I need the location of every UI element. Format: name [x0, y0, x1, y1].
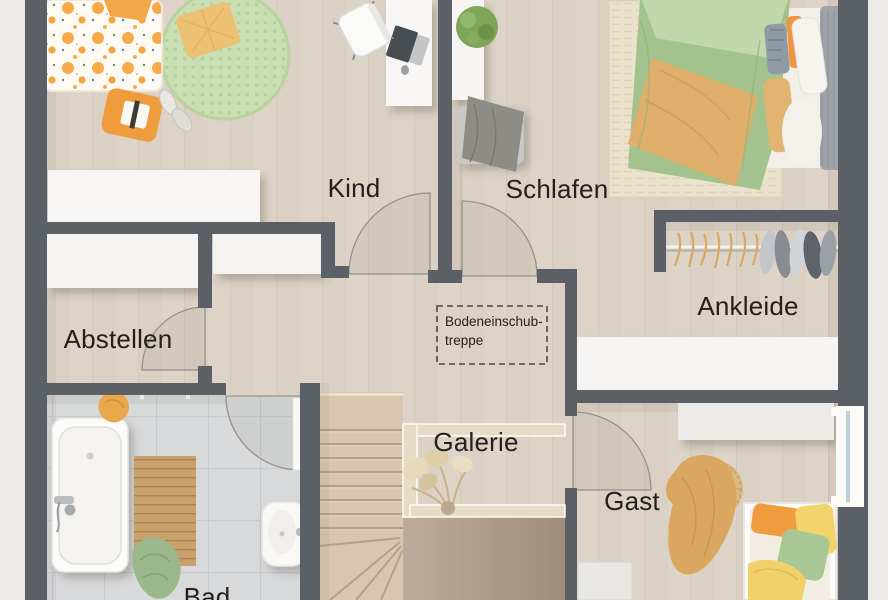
gast-wardrobe: [678, 403, 834, 440]
floorplan-image: Bodeneinschub- treppe Kind Schlafen Abst…: [0, 0, 888, 600]
wall-outer-right: [838, 0, 868, 600]
wall-schlafen-hall: [537, 269, 577, 283]
attic-hatch-label-line2: treppe: [445, 333, 483, 348]
potted-plant: [456, 6, 498, 48]
wall-ankleide-gast: [565, 390, 840, 403]
window-handle-bottom: [831, 496, 837, 505]
room-label-galerie: Galerie: [433, 427, 518, 457]
wall-schlafen-ankleide: [654, 210, 844, 222]
wall-kind-hall: [25, 222, 335, 234]
wall-spine-cap: [428, 270, 462, 283]
wall-ankleide-stub: [654, 210, 666, 272]
room-label-abstellen: Abstellen: [64, 324, 173, 354]
mouse: [401, 65, 409, 75]
floorplan-svg: Bodeneinschub- treppe Kind Schlafen Abst…: [0, 0, 888, 600]
wall-bad-top: [25, 383, 226, 395]
wall-hall-gast: [565, 488, 577, 600]
wall-outer-left: [25, 0, 47, 600]
attic-hatch-label-line1: Bodeneinschub-: [445, 314, 543, 329]
outside-left: [0, 0, 25, 600]
room-label-ankleide: Ankleide: [697, 291, 798, 321]
wall-stub-cap: [335, 266, 349, 278]
wall-kind-schlafen: [438, 0, 452, 272]
ankleide-dresser: [576, 337, 838, 390]
gast-dresser: [578, 562, 632, 600]
room-label-schlafen: Schlafen: [506, 174, 609, 204]
window-handle-top: [831, 407, 837, 416]
abstellen-shelf: [47, 234, 198, 288]
gallery-void: [403, 515, 565, 600]
room-label-gast: Gast: [604, 486, 660, 516]
room-label-kind: Kind: [328, 173, 381, 203]
railing-bottom: [410, 505, 565, 517]
hall-shelf: [213, 234, 321, 274]
window-glass: [846, 411, 850, 502]
wall-stub: [321, 234, 335, 278]
staircase: [318, 392, 403, 600]
kind-sideboard: [48, 170, 260, 222]
wall-abstellen-right: [198, 222, 212, 308]
wall-stairs-left: [300, 383, 320, 600]
bathtub: [52, 418, 128, 572]
outside-right: [868, 0, 888, 600]
gast-bed: [744, 503, 838, 600]
bath-door-leaf: [293, 398, 301, 470]
room-label-bad: Bad: [184, 582, 231, 600]
